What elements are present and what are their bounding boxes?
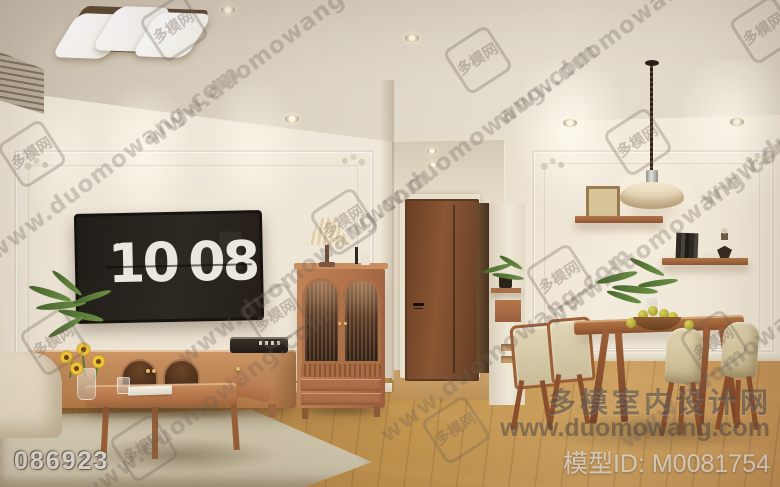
bottle-decor (361, 252, 370, 265)
drawer-knob (152, 369, 156, 373)
chair-seat-shell (720, 321, 760, 379)
flip-clock: 10 08 (107, 231, 258, 294)
table-lamp-stem (325, 245, 329, 263)
cabinet-fluted-band (301, 364, 381, 377)
cabinet-knob (338, 322, 341, 325)
leaf-shape (638, 277, 678, 289)
clock-minutes: 08 (187, 231, 257, 292)
hallway-downlight (428, 162, 438, 168)
fruit (626, 318, 636, 328)
downlight (563, 119, 577, 127)
table-lamp-base (319, 262, 335, 267)
cabinet-arched-door (342, 278, 381, 364)
console-leg (268, 404, 276, 417)
cabinet-top (294, 263, 388, 269)
coffee-table-leg (152, 407, 158, 459)
sofa-armrest (0, 352, 62, 438)
shelf-books (676, 233, 699, 260)
shelf-flower (721, 228, 728, 240)
display-cabinet (297, 268, 385, 408)
cabinet-knob (344, 322, 347, 325)
chair-seat-shell (664, 327, 704, 385)
interior-door (405, 199, 479, 381)
drawer-knob (146, 369, 150, 373)
fruit (648, 306, 658, 316)
water-glass (117, 377, 130, 394)
white-book (128, 385, 172, 396)
pendant-lamp-shade (620, 182, 684, 209)
door-panel-line (453, 205, 455, 373)
downlight (405, 34, 419, 42)
niche-wood-panel (495, 300, 521, 322)
candlestick-decor (355, 247, 358, 264)
sunflower (77, 343, 90, 356)
downlight (221, 6, 235, 14)
leaf-shape (492, 272, 524, 281)
watermark-site-url: www.duomowang.com (500, 414, 770, 443)
drawer-knob (236, 367, 240, 371)
hanging-plant (28, 272, 124, 342)
leaf-shape (596, 269, 638, 286)
niche-plant (482, 256, 526, 292)
cabinet-leg (374, 406, 380, 417)
cabinet-drawer (301, 379, 381, 391)
cabinet-arched-door (302, 278, 341, 364)
console-side-shade (270, 350, 296, 408)
interior-render-scene: AM 10 08 (0, 0, 780, 487)
cabinet-drawer (301, 393, 381, 405)
wall-shelf-upper (575, 216, 663, 223)
fruit (684, 320, 694, 330)
leaf-shape (47, 314, 85, 339)
vintage-radio (230, 337, 288, 353)
watermark-model-id: 模型ID: M0081754 (563, 444, 770, 480)
hallway-downlight (427, 148, 437, 154)
sunflower (92, 355, 105, 368)
radio-knobs (259, 341, 283, 345)
image-code: 086923 (14, 447, 109, 476)
downlight (285, 115, 299, 123)
door-handle (413, 303, 424, 306)
table-plant (592, 260, 682, 308)
cabinet-leg (302, 408, 308, 419)
pendant-coiled-cord (650, 63, 653, 173)
sunflower (70, 362, 83, 375)
sunflower (60, 351, 73, 364)
downlight (730, 118, 744, 126)
